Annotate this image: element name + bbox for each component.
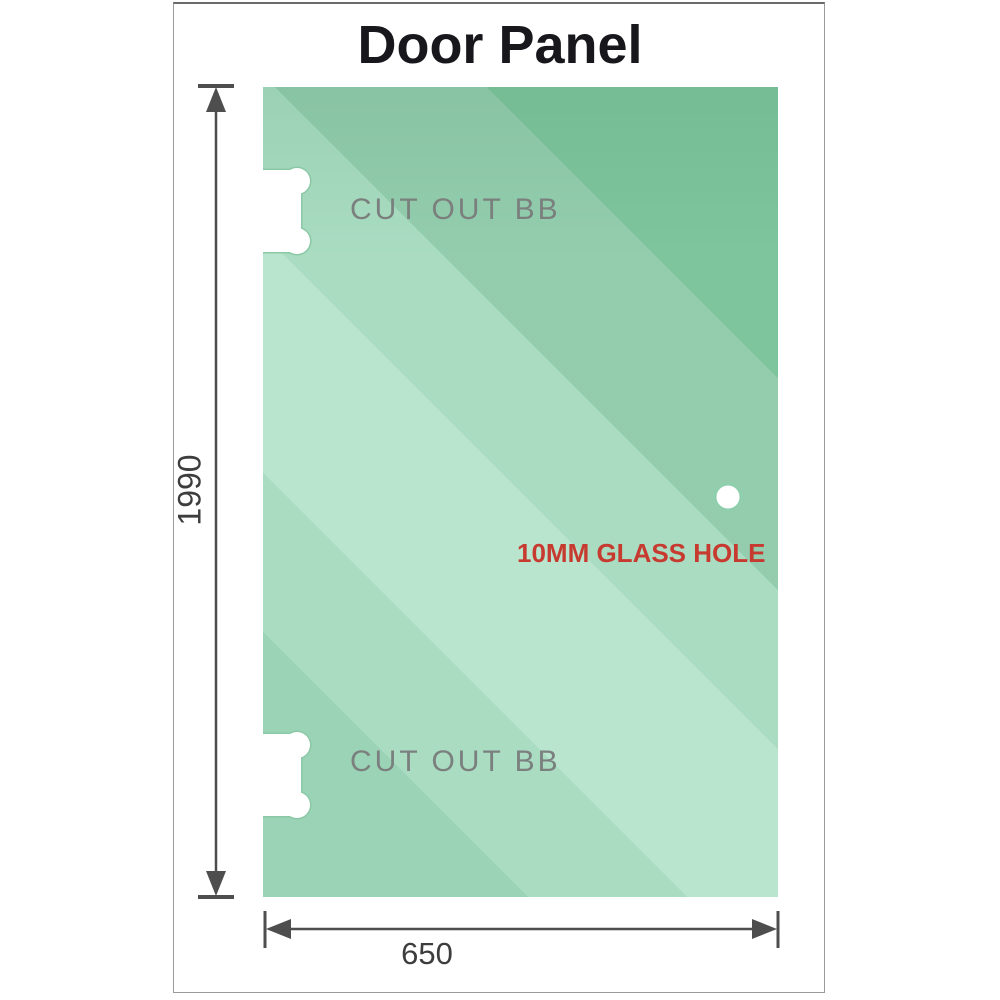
glass-hole — [715, 484, 741, 510]
glass-hole-label: 10MM GLASS HOLE — [517, 538, 765, 569]
arrow-left-icon — [266, 919, 291, 939]
diagram-overlay — [0, 0, 1000, 1000]
arrow-right-icon — [752, 919, 777, 939]
height-dimension-label: 1990 — [172, 454, 209, 525]
cutout-label-bottom: CUT OUT BB — [350, 745, 561, 779]
arrow-up-icon — [206, 87, 226, 112]
diagram-canvas: Door Panel — [0, 0, 1000, 1000]
width-dimension — [265, 911, 778, 948]
width-dimension-label: 650 — [401, 936, 453, 972]
arrow-down-icon — [206, 871, 226, 896]
hinge-cutout-top — [261, 168, 310, 254]
hinge-cutout-bottom — [261, 732, 310, 818]
cutout-label-top: CUT OUT BB — [350, 193, 561, 227]
